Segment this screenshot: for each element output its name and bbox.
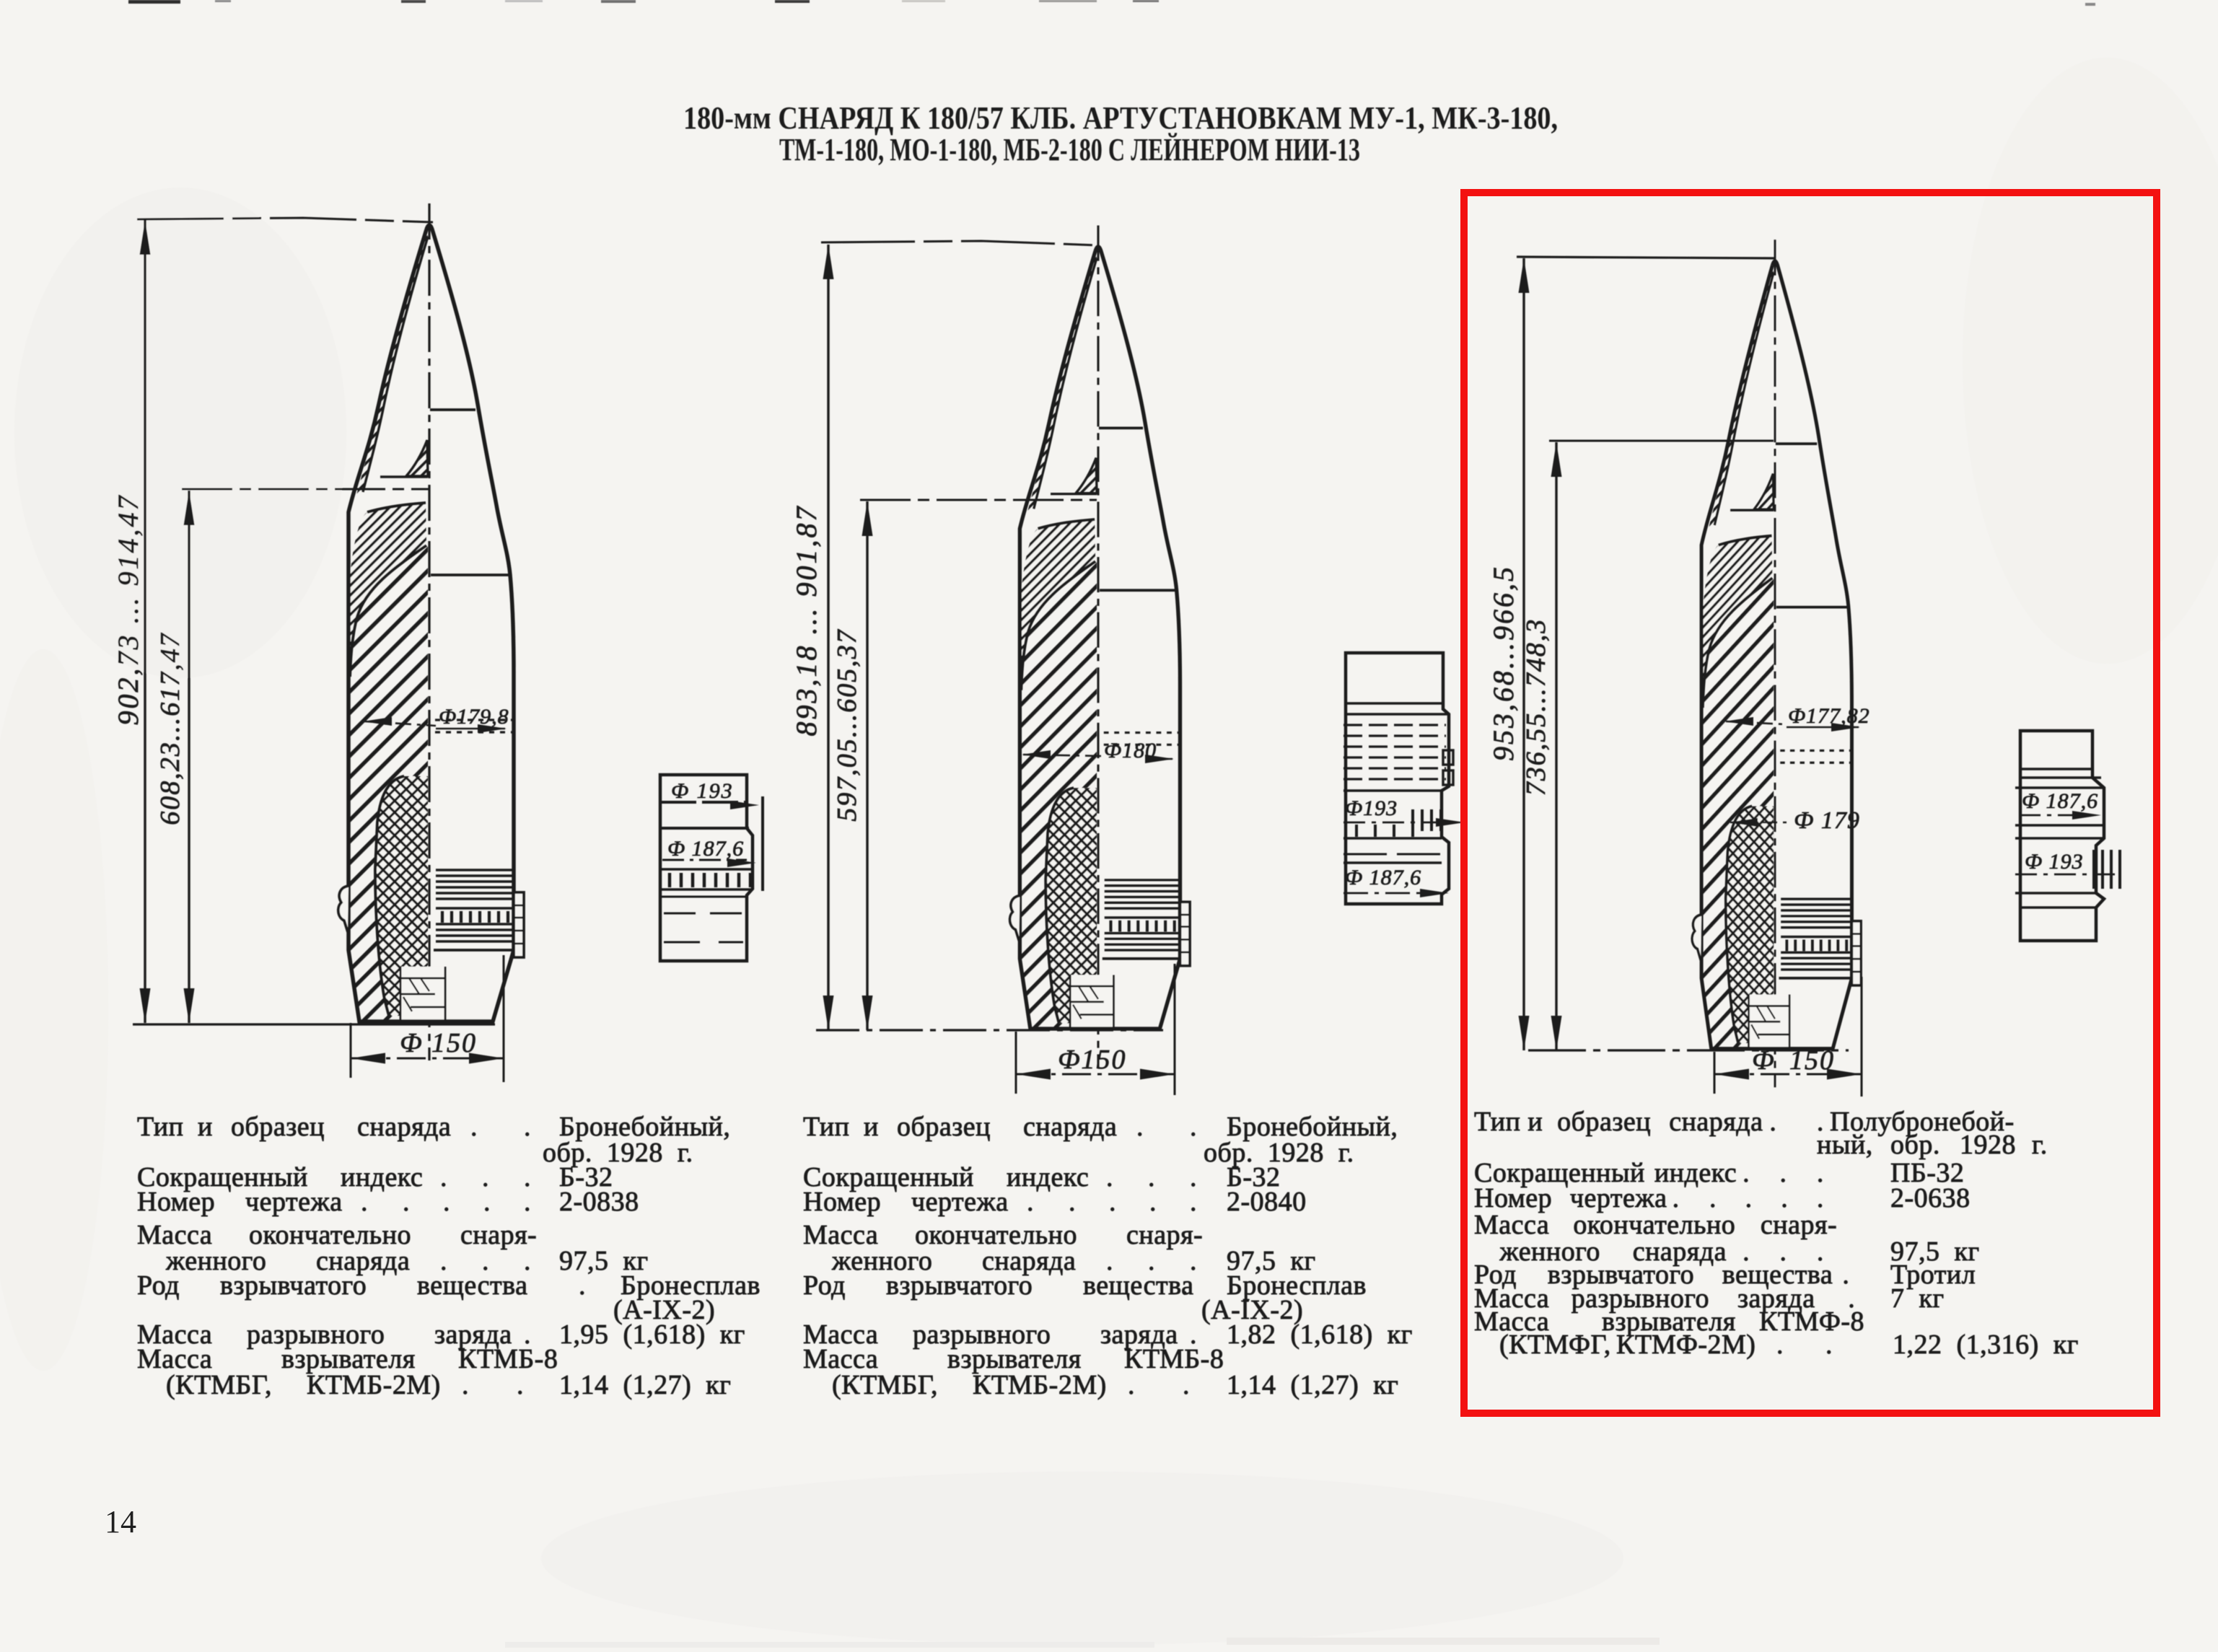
svg-text:г.: г. bbox=[2032, 1130, 2048, 1160]
svg-text:чертежа: чертежа bbox=[245, 1187, 343, 1217]
svg-text:.: . bbox=[1709, 1183, 1717, 1213]
svg-text:(КТМФГ,: (КТМФГ, bbox=[1499, 1330, 1611, 1360]
svg-text:ТМ-1-180, МО-1-180, МБ-2-180 С: ТМ-1-180, МО-1-180, МБ-2-180 С ЛЕЙНЕРОМ … bbox=[779, 132, 1360, 167]
svg-text:893,18 ... 901,87: 893,18 ... 901,87 bbox=[790, 505, 823, 737]
svg-text:Тип: Тип bbox=[803, 1112, 849, 1142]
svg-text:Ф 187,6: Ф 187,6 bbox=[667, 837, 744, 861]
svg-text:взрывчатого: взрывчатого bbox=[220, 1270, 367, 1301]
svg-text:2-0840: 2-0840 bbox=[1227, 1187, 1307, 1217]
svg-text:индекс: индекс bbox=[341, 1162, 423, 1192]
svg-text:(КТМБГ,: (КТМБГ, bbox=[832, 1370, 938, 1400]
svg-text:1,22 (1,316) кг: 1,22 (1,316) кг bbox=[1893, 1330, 2079, 1360]
svg-text:1,95 (1,618) кг: 1,95 (1,618) кг bbox=[559, 1319, 745, 1350]
svg-text:и: и bbox=[1527, 1107, 1543, 1137]
svg-text:.: . bbox=[1673, 1183, 1680, 1213]
svg-text:и: и bbox=[198, 1112, 213, 1142]
svg-text:вещества: вещества bbox=[417, 1270, 527, 1301]
svg-text:Номер: Номер bbox=[1474, 1183, 1552, 1213]
svg-text:чертежа: чертежа bbox=[1570, 1183, 1667, 1213]
svg-text:(КТМБГ,: (КТМБГ, bbox=[166, 1370, 272, 1400]
svg-text:7 кг: 7 кг bbox=[1890, 1283, 1945, 1314]
svg-text:Тип: Тип bbox=[137, 1112, 183, 1142]
svg-text:Ф193: Ф193 bbox=[1345, 796, 1398, 820]
svg-text:КТМФ-2М): КТМФ-2М) bbox=[1616, 1330, 1755, 1360]
svg-text:КТМБ-2М): КТМБ-2М) bbox=[973, 1370, 1107, 1400]
svg-text:.: . bbox=[483, 1187, 491, 1217]
svg-text:.: . bbox=[470, 1112, 478, 1142]
svg-text:Ф179,8: Ф179,8 bbox=[439, 705, 509, 729]
svg-text:597,05...605,37: 597,05...605,37 bbox=[832, 628, 862, 822]
svg-text:снаря-: снаря- bbox=[1761, 1210, 1837, 1240]
svg-text:.: . bbox=[1136, 1112, 1144, 1142]
svg-text:индекс: индекс bbox=[1007, 1162, 1089, 1192]
svg-text:вещества: вещества bbox=[1083, 1270, 1193, 1301]
svg-text:Ф150: Ф150 bbox=[1058, 1045, 1127, 1075]
svg-text:.: . bbox=[517, 1370, 524, 1400]
svg-text:КТМФ-8: КТМФ-8 bbox=[1759, 1306, 1864, 1337]
svg-text:.: . bbox=[1776, 1330, 1784, 1360]
svg-text:Ф 193: Ф 193 bbox=[671, 779, 734, 803]
svg-text:2-0838: 2-0838 bbox=[559, 1187, 639, 1217]
svg-text:.: . bbox=[403, 1187, 410, 1217]
svg-text:Род: Род bbox=[803, 1270, 846, 1301]
svg-text:.: . bbox=[1128, 1370, 1135, 1400]
svg-text:.: . bbox=[1745, 1183, 1753, 1213]
svg-text:608,23...617,47: 608,23...617,47 bbox=[155, 632, 185, 825]
svg-text:и: и bbox=[864, 1112, 879, 1142]
svg-text:.: . bbox=[1183, 1370, 1190, 1400]
svg-text:Ф 193: Ф 193 bbox=[2025, 850, 2084, 874]
svg-text:.: . bbox=[1069, 1187, 1076, 1217]
svg-text:Ф 187,6: Ф 187,6 bbox=[2022, 789, 2098, 813]
svg-text:Род: Род bbox=[137, 1270, 180, 1301]
svg-text:180-мм СНАРЯД К 180/57 КЛБ. АР: 180-мм СНАРЯД К 180/57 КЛБ. АРТУСТАНОВКА… bbox=[683, 100, 1558, 136]
svg-text:.: . bbox=[1817, 1183, 1824, 1213]
svg-text:.: . bbox=[1027, 1187, 1034, 1217]
svg-text:.: . bbox=[1181, 1270, 1188, 1301]
svg-text:1928: 1928 bbox=[1960, 1130, 2016, 1160]
svg-text:.: . bbox=[1149, 1187, 1157, 1217]
svg-text:КТМБ-8: КТМБ-8 bbox=[458, 1344, 558, 1374]
svg-text:ный,: ный, bbox=[1817, 1130, 1873, 1160]
svg-text:953,68...966,5: 953,68...966,5 bbox=[1487, 565, 1520, 761]
svg-text:.: . bbox=[462, 1370, 469, 1400]
svg-text:чертежа: чертежа bbox=[911, 1187, 1009, 1217]
svg-text:2-0638: 2-0638 bbox=[1890, 1183, 1971, 1213]
svg-text:КТМБ-8: КТМБ-8 bbox=[1124, 1344, 1224, 1374]
svg-text:образец: образец bbox=[231, 1112, 325, 1142]
svg-text:обр.: обр. bbox=[1890, 1130, 1940, 1160]
svg-text:Ф 150: Ф 150 bbox=[400, 1028, 477, 1058]
svg-text:1,82 (1,618) кг: 1,82 (1,618) кг bbox=[1227, 1319, 1413, 1350]
svg-text:снаряда: снаряда bbox=[357, 1112, 451, 1142]
svg-text:.: . bbox=[1825, 1330, 1833, 1360]
svg-text:Тип: Тип bbox=[1474, 1107, 1520, 1137]
svg-text:образец: образец bbox=[1557, 1107, 1651, 1137]
svg-text:14: 14 bbox=[105, 1504, 136, 1539]
svg-text:.: . bbox=[1109, 1187, 1116, 1217]
svg-text:.: . bbox=[1769, 1107, 1776, 1137]
svg-text:снаряда: снаряда bbox=[1669, 1107, 1763, 1137]
svg-text:снаряда: снаряда bbox=[1023, 1112, 1117, 1142]
svg-text:Номер: Номер bbox=[137, 1187, 215, 1217]
svg-text:.: . bbox=[1190, 1187, 1197, 1217]
svg-text:КТМБ-2М): КТМБ-2М) bbox=[307, 1370, 441, 1400]
svg-text:Ф 187,6: Ф 187,6 bbox=[1345, 866, 1421, 889]
svg-text:.: . bbox=[443, 1187, 450, 1217]
svg-text:1,14 (1,27) кг: 1,14 (1,27) кг bbox=[559, 1370, 731, 1400]
svg-text:Ф177,82: Ф177,82 bbox=[1788, 704, 1870, 728]
svg-text:образец: образец bbox=[897, 1112, 991, 1142]
svg-text:Номер: Номер bbox=[803, 1187, 881, 1217]
svg-text:1,14 (1,27) кг: 1,14 (1,27) кг bbox=[1227, 1370, 1398, 1400]
svg-text:взрывчатого: взрывчатого bbox=[886, 1270, 1033, 1301]
svg-text:.: . bbox=[524, 1112, 531, 1142]
svg-text:Ф: Ф bbox=[1752, 1045, 1776, 1076]
svg-text:Масса: Масса bbox=[1474, 1210, 1549, 1240]
svg-text:736,55...748,3: 736,55...748,3 bbox=[1521, 618, 1551, 796]
svg-text:.: . bbox=[524, 1187, 531, 1217]
svg-text:.: . bbox=[361, 1187, 368, 1217]
svg-text:902,73 ... 914,47: 902,73 ... 914,47 bbox=[112, 494, 144, 726]
svg-text:Ф 179: Ф 179 bbox=[1794, 807, 1860, 834]
svg-text:.: . bbox=[1190, 1112, 1197, 1142]
svg-text:.: . bbox=[1781, 1183, 1788, 1213]
svg-text:окончательно: окончательно bbox=[1573, 1210, 1735, 1240]
